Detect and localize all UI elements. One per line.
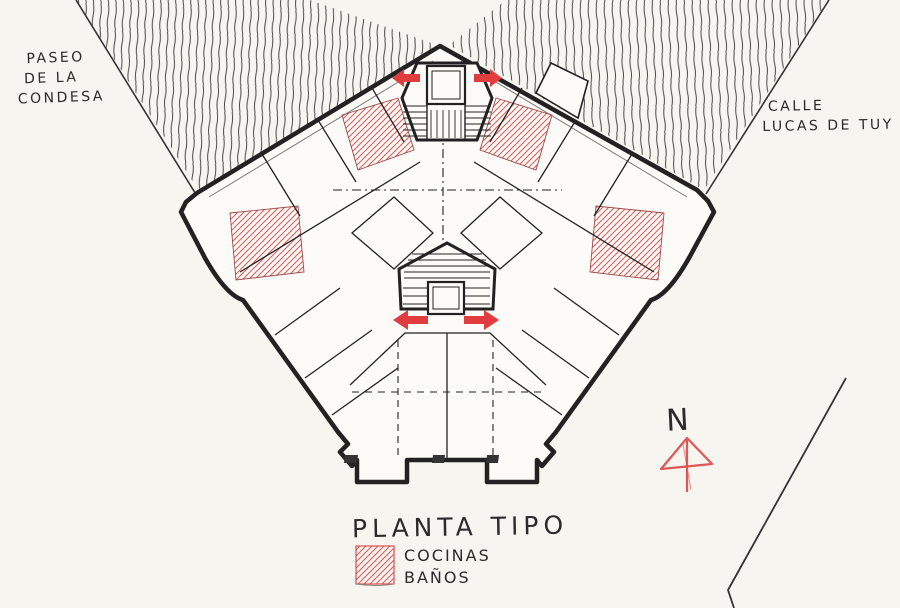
street-label-line: LUCAS DE TUY: [762, 117, 894, 135]
street-label-line: PASEO: [26, 49, 85, 67]
street-label-paseo: PASEO DE LA CONDESA: [16, 48, 105, 107]
street-label-line: CONDESA: [18, 88, 106, 107]
bath-hatch-right-wing: [590, 206, 664, 280]
elevator-top: [427, 66, 465, 104]
north-label: N: [665, 403, 689, 439]
plan-drawing: N PASEO DE LA CONDESA CALLE LUCAS DE TUY…: [0, 0, 900, 608]
stairwell-central: [399, 243, 495, 314]
legend-item-cocinas: COCINAS: [404, 546, 491, 565]
floor-plan-sketch: N PASEO DE LA CONDESA CALLE LUCAS DE TUY…: [0, 0, 900, 608]
legend: COCINAS BAÑOS: [356, 546, 491, 587]
bath-hatch-left-wing: [230, 206, 304, 280]
street-label-line: CALLE: [768, 98, 825, 115]
street-label-calle: CALLE LUCAS DE TUY: [762, 97, 894, 135]
legend-swatch: [356, 546, 394, 584]
page-title: PLANTA TIPO: [352, 511, 569, 544]
street-label-line: DE LA: [24, 69, 79, 87]
legend-item-banos: BAÑOS: [404, 568, 471, 587]
street-line-calle-lower: [728, 378, 846, 608]
north-arrow-icon: N: [661, 403, 712, 492]
